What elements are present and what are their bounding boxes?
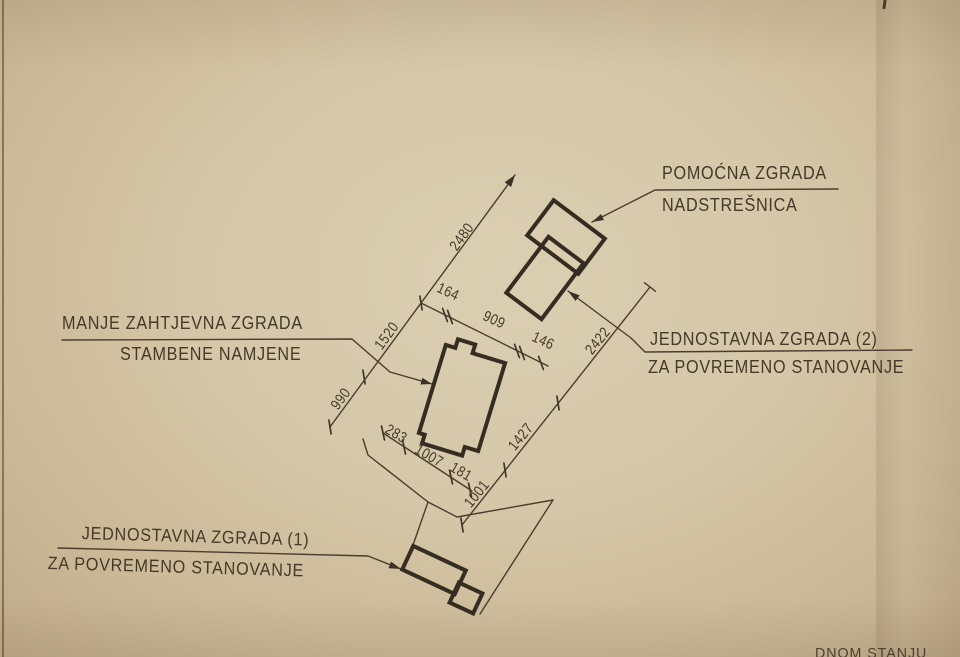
arrow-dim-chain-left <box>505 175 515 187</box>
auxiliary-canopy <box>527 200 605 274</box>
dim-end-bar <box>645 283 656 292</box>
corner-note-partial: DNOM STANJU <box>815 646 927 657</box>
arrow-auxiliary <box>592 214 604 222</box>
arrow-simple2 <box>568 291 580 301</box>
dimension-lines <box>330 175 656 525</box>
simple2-label-line1: JEDNOSTAVNA ZGRADA (2) <box>650 330 878 348</box>
arrow-simple1 <box>389 562 402 569</box>
site-plan-photo: POMOĆNA ZGRADA NADSTREŠNICA MANJE ZAHTJE… <box>0 0 960 657</box>
auxiliary-label-line1: POMOĆNA ZGRADA <box>662 164 827 182</box>
parcel-boundary-branch <box>412 502 428 548</box>
residential-label-line2: STAMBENE NAMJENE <box>120 345 301 363</box>
dim-chain-left-line <box>330 175 515 427</box>
buildings <box>402 200 605 613</box>
arrow-residential <box>421 378 433 385</box>
simple-building-1-annex <box>450 583 483 614</box>
residential-label-line1: MANJE ZAHTJEVNA ZGRADA <box>62 314 303 332</box>
auxiliary-label-line2: NADSTREŠNICA <box>662 196 798 214</box>
main-residential-building <box>416 336 507 459</box>
simple2-label-line2: ZA POVREMENO STANOVANJE <box>648 358 904 376</box>
dimension-ticks <box>329 296 559 532</box>
